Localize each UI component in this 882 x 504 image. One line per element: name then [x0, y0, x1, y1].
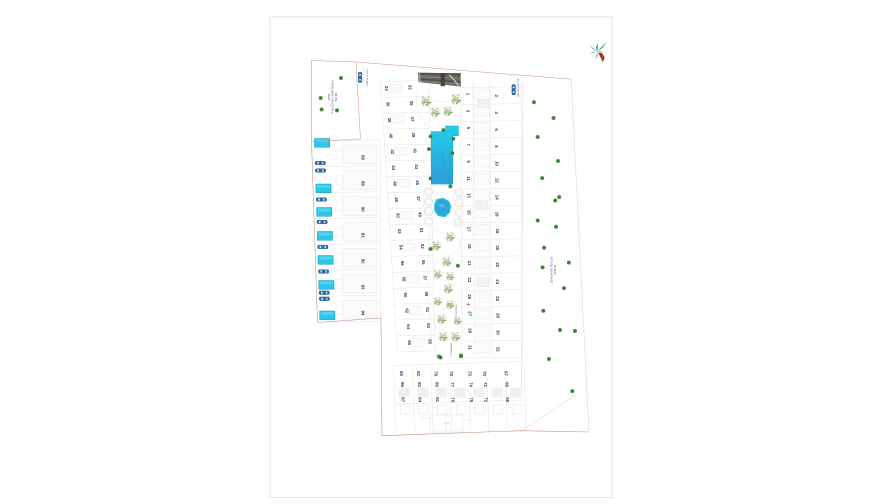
svg-text:16: 16 — [495, 212, 500, 217]
svg-text:89: 89 — [361, 181, 366, 186]
svg-text:57: 57 — [423, 276, 428, 281]
svg-text:23: 23 — [467, 278, 472, 283]
svg-text:53: 53 — [420, 244, 425, 249]
svg-text:27: 27 — [467, 311, 472, 316]
svg-text:47: 47 — [416, 196, 421, 201]
svg-text:22: 22 — [495, 262, 500, 267]
svg-text:91: 91 — [361, 233, 366, 238]
svg-text:35: 35 — [409, 101, 414, 106]
svg-text:43: 43 — [414, 164, 419, 169]
svg-text:24: 24 — [495, 279, 500, 284]
svg-text:54: 54 — [399, 245, 404, 250]
svg-text:69: 69 — [505, 397, 510, 402]
svg-text:77: 77 — [450, 382, 455, 387]
svg-text:15: 15 — [467, 210, 472, 215]
svg-text:45: 45 — [415, 180, 420, 185]
svg-text:80: 80 — [435, 382, 440, 387]
svg-text:41: 41 — [413, 148, 418, 153]
svg-text:17: 17 — [467, 227, 472, 232]
svg-text:61: 61 — [425, 307, 430, 312]
svg-text:28: 28 — [495, 313, 500, 318]
svg-text:20: 20 — [495, 246, 500, 251]
svg-text:21: 21 — [467, 261, 472, 266]
svg-text:55: 55 — [421, 260, 426, 265]
svg-text:85: 85 — [399, 371, 404, 376]
svg-text:56: 56 — [400, 261, 405, 266]
svg-text:82: 82 — [416, 371, 421, 376]
svg-text:78: 78 — [450, 397, 455, 402]
svg-text:79: 79 — [434, 371, 439, 376]
svg-text:33: 33 — [408, 85, 413, 90]
svg-text:68: 68 — [505, 382, 510, 387]
svg-text:51: 51 — [419, 228, 424, 233]
svg-text:40: 40 — [388, 134, 393, 139]
svg-text:37: 37 — [410, 117, 415, 122]
svg-text:ZONA INFANTIL: ZONA INFANTIL — [450, 342, 453, 355]
svg-text:71: 71 — [483, 382, 488, 387]
svg-text:48: 48 — [394, 197, 399, 202]
svg-text:93: 93 — [361, 285, 366, 290]
svg-text:42: 42 — [390, 149, 395, 154]
svg-text:66: 66 — [407, 340, 412, 345]
svg-text:65: 65 — [428, 339, 433, 344]
svg-text:87: 87 — [400, 397, 405, 402]
svg-text:75: 75 — [469, 397, 474, 402]
svg-text:13: 13 — [466, 193, 471, 198]
svg-text:ZONA JUEGOS: ZONA JUEGOS — [455, 305, 458, 319]
svg-text:84: 84 — [418, 397, 423, 402]
svg-text:34: 34 — [384, 86, 389, 91]
svg-text:ACCESO RODADO: ACCESO RODADO — [365, 70, 368, 87]
svg-text:94: 94 — [361, 311, 366, 316]
svg-text:50: 50 — [396, 213, 401, 218]
svg-text:60: 60 — [403, 293, 408, 298]
svg-text:38: 38 — [387, 118, 392, 123]
svg-text:81: 81 — [435, 397, 440, 402]
svg-text:92: 92 — [361, 259, 366, 264]
svg-text:73: 73 — [468, 371, 473, 376]
svg-text:39: 39 — [411, 133, 416, 138]
svg-text:74: 74 — [469, 382, 474, 387]
svg-text:67: 67 — [504, 371, 509, 376]
svg-text:52: 52 — [397, 229, 402, 234]
svg-text:30: 30 — [496, 330, 501, 335]
svg-text:76: 76 — [449, 371, 454, 376]
svg-text:3.430 M2: 3.430 M2 — [554, 264, 557, 275]
svg-text:32: 32 — [496, 347, 501, 352]
svg-text:632 M2: 632 M2 — [335, 92, 338, 101]
svg-text:64: 64 — [406, 324, 411, 329]
svg-text:72: 72 — [483, 397, 488, 402]
svg-text:46: 46 — [393, 181, 398, 186]
svg-text:36: 36 — [385, 102, 390, 107]
svg-text:59: 59 — [424, 292, 429, 297]
svg-text:PISCINA: PISCINA — [441, 154, 444, 163]
svg-text:31: 31 — [468, 345, 473, 350]
svg-text:88: 88 — [361, 155, 366, 160]
svg-text:29: 29 — [468, 328, 473, 333]
svg-text:44: 44 — [391, 165, 396, 170]
svg-text:26: 26 — [495, 296, 500, 301]
svg-text:11: 11 — [466, 176, 471, 181]
svg-text:63: 63 — [426, 323, 431, 328]
svg-text:12: 12 — [494, 178, 499, 183]
svg-text:58: 58 — [401, 277, 406, 282]
svg-text:ACCESO PEATONAL: ACCESO PEATONAL — [517, 79, 520, 97]
svg-text:18: 18 — [495, 229, 500, 234]
svg-text:83: 83 — [417, 382, 422, 387]
svg-text:14: 14 — [495, 195, 500, 200]
svg-text:70: 70 — [482, 371, 487, 376]
svg-text:62: 62 — [404, 308, 409, 313]
svg-text:PISTA: PISTA — [443, 422, 450, 425]
svg-text:86: 86 — [400, 382, 405, 387]
svg-text:49: 49 — [418, 212, 423, 217]
svg-text:19: 19 — [467, 244, 472, 249]
svg-text:25: 25 — [467, 294, 472, 299]
svg-text:10: 10 — [494, 161, 499, 166]
svg-text:90: 90 — [361, 207, 366, 212]
